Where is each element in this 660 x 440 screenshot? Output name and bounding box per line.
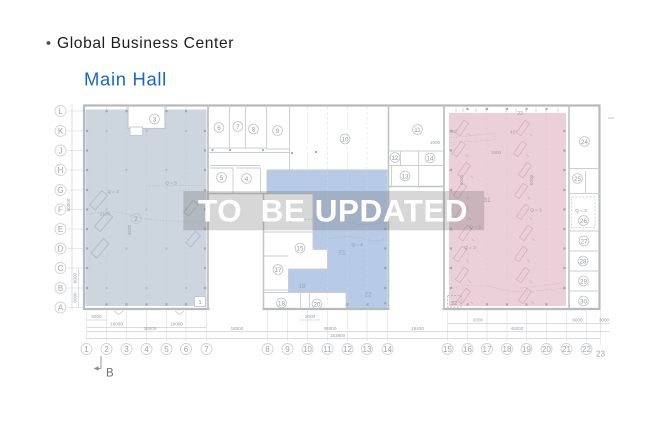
svg-text:J: J: [59, 147, 63, 156]
svg-text:6000: 6000: [529, 174, 534, 185]
svg-text:10: 10: [303, 345, 312, 354]
svg-text:26: 26: [580, 218, 587, 225]
svg-text:16: 16: [463, 345, 472, 354]
svg-text:36000: 36000: [144, 326, 157, 331]
svg-text:20: 20: [542, 345, 551, 354]
svg-text:20: 20: [314, 301, 321, 308]
svg-text:Q = 3: Q = 3: [107, 189, 119, 194]
svg-text:9: 9: [285, 345, 290, 354]
svg-text:2: 2: [134, 216, 138, 223]
svg-text:K: K: [58, 127, 64, 136]
svg-text:1: 1: [198, 300, 201, 306]
svg-text:1000: 1000: [473, 318, 484, 323]
svg-text:25: 25: [574, 176, 581, 183]
svg-text:31: 31: [483, 197, 491, 204]
svg-text:6000: 6000: [73, 272, 78, 283]
svg-text:E: E: [58, 225, 63, 234]
svg-text:60000: 60000: [66, 198, 71, 211]
svg-text:B: B: [58, 284, 63, 293]
svg-text:Q = 3: Q = 3: [464, 245, 476, 250]
svg-text:7: 7: [236, 124, 240, 131]
svg-text:7: 7: [204, 345, 209, 354]
svg-text:11: 11: [323, 345, 332, 354]
svg-text:H: H: [58, 166, 64, 175]
svg-text:1900: 1900: [430, 140, 441, 145]
svg-text:12: 12: [343, 345, 352, 354]
svg-text:Q = 3: Q = 3: [575, 208, 587, 214]
svg-text:36000: 36000: [324, 326, 337, 331]
svg-text:18000: 18000: [110, 322, 123, 327]
svg-text:153800: 153800: [330, 333, 346, 338]
svg-text:19: 19: [298, 283, 306, 290]
svg-text:Q = 3: Q = 3: [530, 208, 542, 213]
svg-text:5: 5: [220, 175, 224, 182]
svg-text:L: L: [58, 107, 63, 116]
svg-text:23: 23: [596, 350, 605, 359]
svg-text:3600: 3600: [127, 224, 132, 235]
svg-text:Q = 3: Q = 3: [165, 181, 177, 186]
svg-text:3: 3: [153, 116, 157, 123]
svg-text:24: 24: [581, 139, 588, 146]
svg-text:22: 22: [364, 292, 372, 299]
svg-text:6000: 6000: [459, 174, 464, 185]
svg-text:3: 3: [124, 345, 129, 354]
svg-text:Q = 3: Q = 3: [351, 242, 363, 247]
svg-text:2: 2: [104, 345, 109, 354]
svg-text:27: 27: [581, 238, 588, 245]
svg-text:8: 8: [265, 345, 270, 354]
svg-text:D: D: [58, 245, 64, 254]
svg-text:1: 1: [84, 345, 89, 354]
svg-text:11: 11: [414, 127, 421, 134]
svg-text:28: 28: [580, 258, 587, 265]
svg-text:6: 6: [217, 125, 221, 132]
svg-text:8: 8: [252, 126, 256, 133]
svg-text:3000: 3000: [599, 318, 610, 323]
svg-text:G: G: [57, 186, 63, 195]
svg-text:32: 32: [451, 301, 457, 307]
svg-text:30: 30: [580, 298, 587, 305]
svg-text:6000: 6000: [91, 314, 102, 319]
svg-text:18400: 18400: [411, 326, 424, 331]
svg-text:6: 6: [184, 345, 189, 354]
svg-text:9: 9: [276, 128, 280, 135]
svg-text:TO BE UPDATED: TO BE UPDATED: [198, 193, 468, 229]
svg-text:2000: 2000: [305, 314, 316, 319]
svg-text:10: 10: [342, 136, 349, 143]
svg-text:A: A: [58, 304, 64, 313]
svg-text:6000: 6000: [572, 318, 583, 323]
svg-text:1900: 1900: [491, 150, 502, 155]
svg-text:15: 15: [297, 245, 304, 252]
svg-text:5: 5: [164, 345, 169, 354]
svg-text:21: 21: [562, 345, 571, 354]
svg-text:B: B: [106, 368, 114, 380]
svg-text:18: 18: [278, 300, 285, 307]
svg-text:19: 19: [522, 345, 531, 354]
svg-text:2193: 2193: [100, 212, 111, 217]
svg-text:18: 18: [503, 345, 512, 354]
svg-text:12: 12: [392, 155, 399, 162]
svg-text:18000: 18000: [231, 326, 244, 331]
svg-text:Main Hall: Main Hall: [84, 69, 167, 90]
svg-text:22: 22: [582, 345, 591, 354]
svg-text:6000: 6000: [73, 292, 78, 303]
svg-text:45°: 45°: [510, 130, 517, 135]
svg-text:14: 14: [427, 155, 434, 162]
svg-text:45000: 45000: [511, 326, 524, 331]
svg-text:23: 23: [517, 111, 523, 117]
svg-text:15: 15: [443, 345, 452, 354]
svg-text:14: 14: [383, 345, 392, 354]
svg-text:4: 4: [144, 345, 149, 354]
svg-text:4: 4: [245, 176, 249, 183]
svg-text:29: 29: [580, 278, 587, 285]
svg-text:C: C: [58, 264, 64, 273]
svg-text:18000: 18000: [170, 322, 183, 327]
svg-text:17: 17: [483, 345, 492, 354]
svg-text:F: F: [58, 206, 63, 215]
svg-text:21: 21: [338, 250, 346, 257]
svg-text:13: 13: [402, 173, 409, 180]
svg-text:Global Business Center: Global Business Center: [57, 35, 234, 52]
svg-text:13: 13: [363, 345, 372, 354]
svg-text:17: 17: [275, 267, 282, 274]
